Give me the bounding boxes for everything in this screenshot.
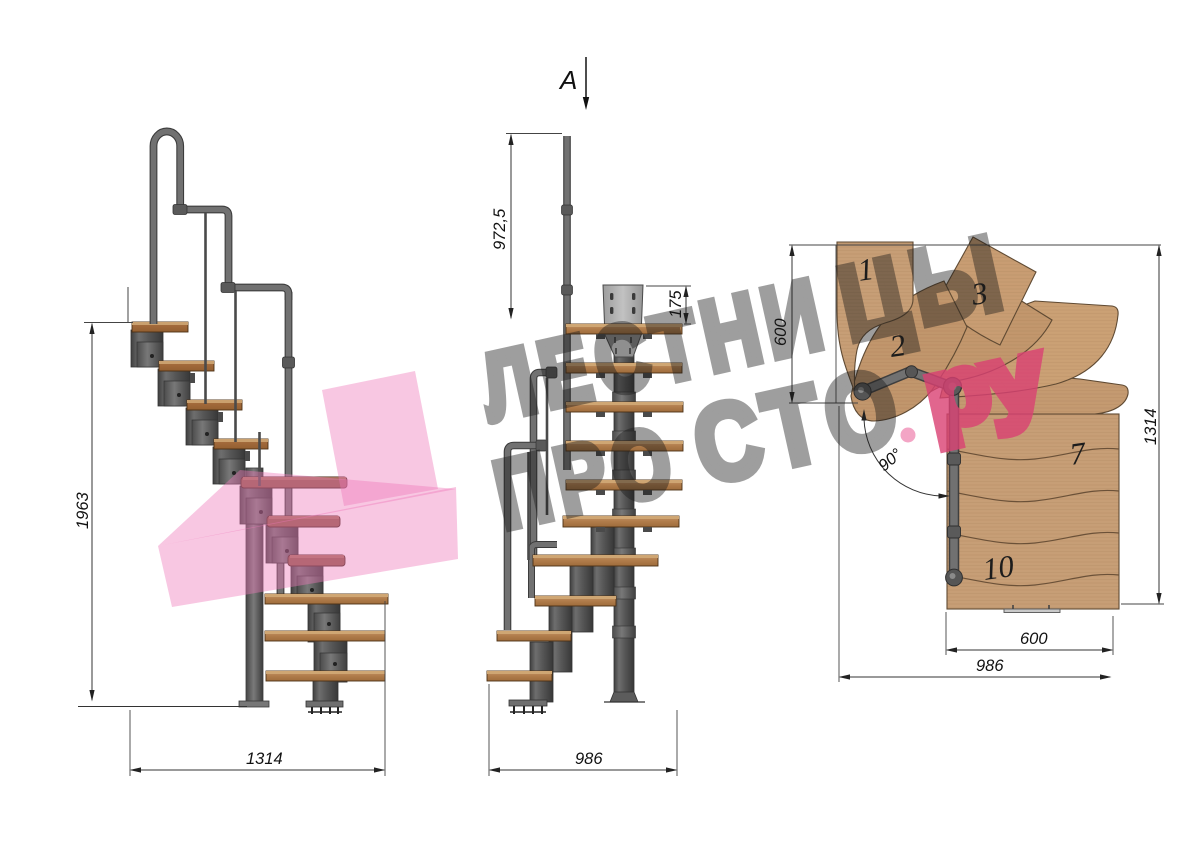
svg-text:1314: 1314 — [1142, 408, 1160, 445]
svg-text:986: 986 — [976, 657, 1004, 675]
svg-text:600: 600 — [1020, 630, 1048, 648]
svg-text:1963: 1963 — [74, 491, 92, 529]
svg-text:972,5: 972,5 — [491, 208, 509, 250]
svg-text:A: A — [558, 65, 577, 95]
svg-text:986: 986 — [575, 750, 603, 768]
svg-text:1314: 1314 — [246, 750, 283, 768]
svg-text:10: 10 — [981, 548, 1017, 587]
